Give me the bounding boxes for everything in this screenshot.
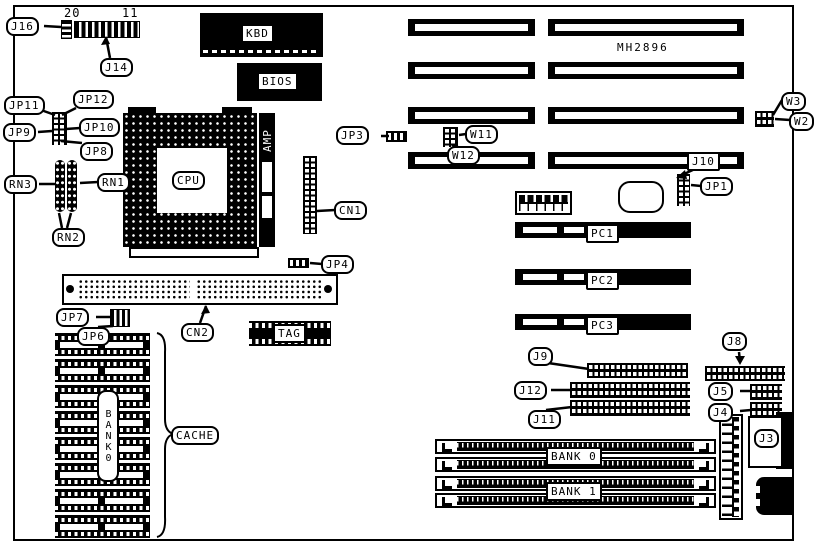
jp11-label: JP11 (4, 96, 45, 115)
j12-label: J12 (514, 381, 547, 400)
cn1-label: CN1 (334, 201, 367, 220)
w12-label: W12 (447, 146, 480, 165)
jp12-label: JP12 (73, 90, 114, 109)
cache-bank0-vertical-label: BANK0 (97, 390, 119, 482)
model-number: MH2896 (617, 41, 669, 54)
j3-label: J3 (754, 429, 779, 448)
j14-pin11-number: 11 (122, 6, 138, 20)
jp9-label: JP9 (3, 123, 36, 142)
tag-label: TAG (273, 324, 306, 343)
rn1-label: RN1 (97, 173, 130, 192)
w2-label: W2 (789, 112, 814, 131)
bank0-label: BANK 0 (546, 447, 602, 466)
jp1-label: JP1 (700, 177, 733, 196)
pc1-label: PC1 (586, 224, 619, 243)
w3-label: W3 (781, 92, 806, 111)
w11-label: W11 (465, 125, 498, 144)
pc2-label: PC2 (586, 271, 619, 290)
jp8-label: JP8 (80, 142, 113, 161)
jp7-label: JP7 (56, 308, 89, 327)
jp6-label: JP6 (77, 327, 110, 346)
callout-lines (0, 0, 820, 546)
bios-chip-label: BIOS (257, 72, 298, 91)
j11-label: J11 (528, 410, 561, 429)
j8-label: J8 (722, 332, 747, 351)
j14-label: J14 (100, 58, 133, 77)
motherboard-diagram: KBD BIOS J16 20 11 J14 JP11 JP12 JP9 JP1… (0, 0, 820, 546)
jp10-label: JP10 (79, 118, 120, 137)
bank1-label: BANK 1 (546, 482, 602, 501)
j5-label: J5 (708, 382, 733, 401)
pc3-label: PC3 (586, 316, 619, 335)
jp3-label: JP3 (336, 126, 369, 145)
j4-label: J4 (708, 403, 733, 422)
cache-label: CACHE (171, 426, 219, 445)
j9-label: J9 (528, 347, 553, 366)
j10-label: J10 (687, 152, 720, 171)
cpu-label: CPU (172, 171, 205, 190)
kbd-chip-label: KBD (241, 24, 274, 43)
cn2-label: CN2 (181, 323, 214, 342)
rn3-label: RN3 (4, 175, 37, 194)
j16-label: J16 (6, 17, 39, 36)
rn2-label: RN2 (52, 228, 85, 247)
jp4-label: JP4 (321, 255, 354, 274)
j14-pin20-number: 20 (64, 6, 80, 20)
